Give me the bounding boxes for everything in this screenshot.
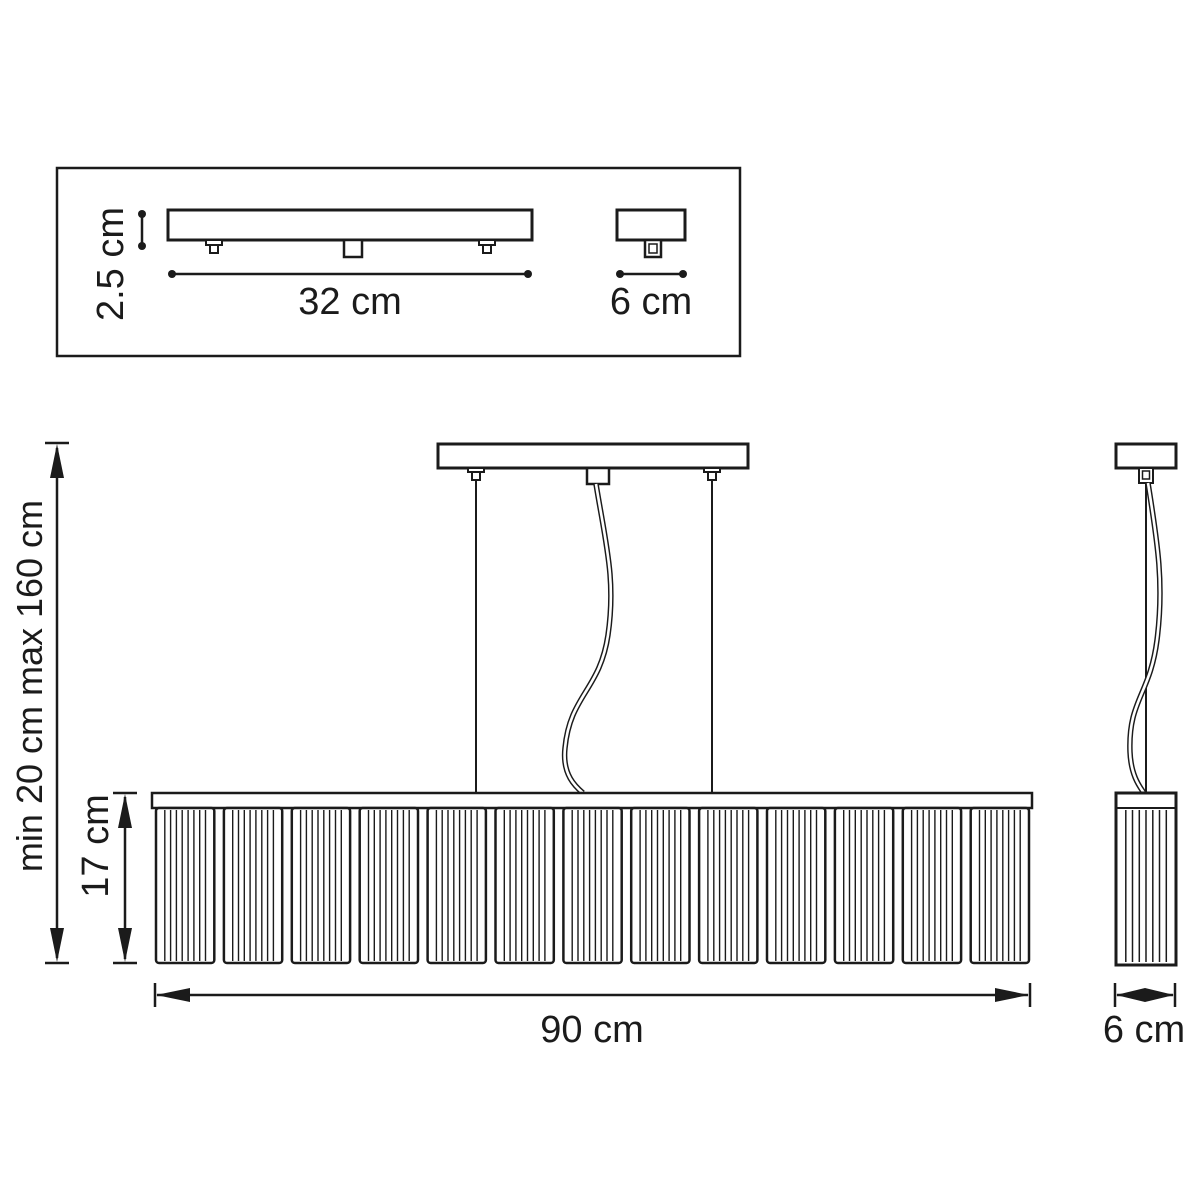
plate-center-connector — [344, 240, 362, 257]
front-shade-frame — [152, 793, 1032, 808]
plate-side-connector — [645, 240, 661, 257]
dim-label-plate-length: 32 cm — [298, 283, 401, 321]
arrowhead-down — [50, 928, 64, 962]
arrowhead-left — [1116, 988, 1145, 1002]
plate-pin-left — [206, 240, 222, 253]
power-cord-center — [565, 484, 611, 793]
dim-shade-depth — [1115, 983, 1175, 1007]
front-shade-panels — [156, 808, 1029, 963]
dim-label-suspension-range: min 20 cm max 160 cm — [12, 500, 48, 872]
dim-label-shade-height: 17 cm — [77, 794, 115, 897]
arrowhead-right — [1145, 988, 1174, 1002]
ceiling-plate-side-view — [617, 210, 685, 257]
arrowhead-down — [118, 928, 132, 962]
dim-plate-height — [138, 210, 146, 250]
dim-label-plate-depth: 6 cm — [610, 283, 692, 321]
dim-label-plate-height: 2.5 cm — [92, 207, 130, 321]
plate-body — [168, 210, 532, 240]
pendant-lamp-dimension-drawing: 2.5 cm 32 cm 6 cm min 20 cm max 160 cm 1… — [0, 0, 1200, 1200]
side-power-cord — [1130, 483, 1160, 793]
dim-plate-depth — [616, 270, 687, 278]
side-canopy-body — [1116, 444, 1176, 468]
dim-plate-length — [168, 270, 532, 278]
inset-box — [57, 168, 740, 356]
arrowhead-up — [50, 444, 64, 478]
ceiling-plate-front-view — [168, 210, 532, 257]
side-canopy — [1116, 444, 1176, 483]
front-canopy-pin-left — [468, 468, 484, 480]
plate-pin-right — [479, 240, 495, 253]
plate-side-body — [617, 210, 685, 240]
front-canopy-pin-right — [704, 468, 720, 480]
front-canopy-body — [438, 444, 748, 468]
inset-border — [57, 168, 740, 356]
arrowhead-right — [995, 988, 1029, 1002]
dim-shade-width — [155, 983, 1030, 1007]
front-canopy-cord-connector — [587, 468, 609, 484]
side-shade-stripes — [1126, 810, 1167, 962]
dim-label-shade-width: 90 cm — [540, 1011, 643, 1049]
front-canopy — [438, 444, 748, 484]
arrowhead-up — [118, 794, 132, 828]
dim-label-shade-depth: 6 cm — [1103, 1011, 1185, 1049]
arrowhead-left — [156, 988, 190, 1002]
side-shade — [1116, 793, 1176, 965]
